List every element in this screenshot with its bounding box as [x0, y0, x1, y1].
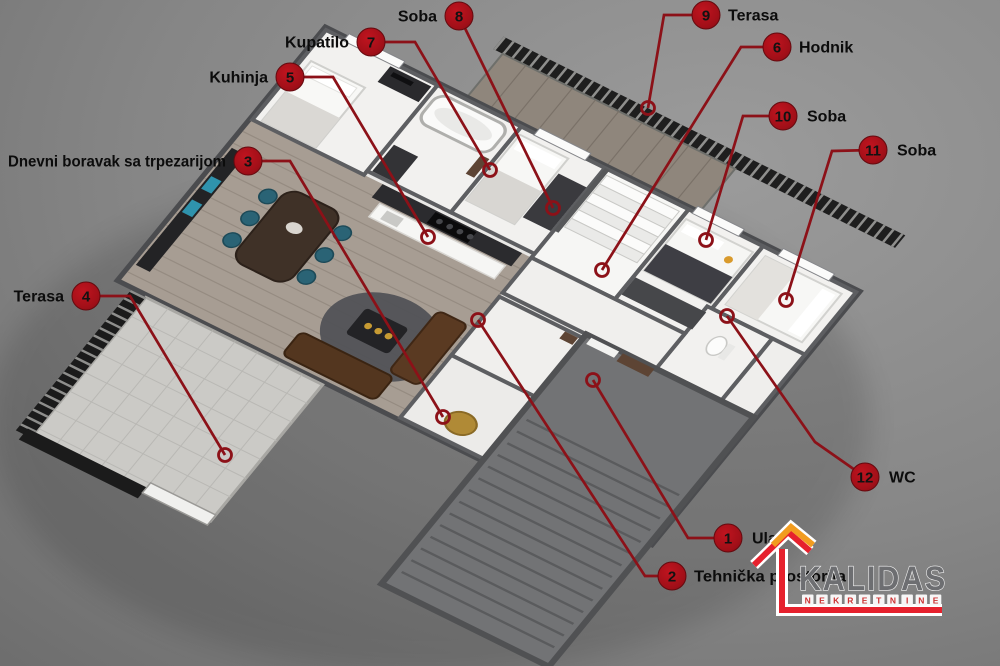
callout-number: 3 — [244, 153, 252, 170]
label-dnevni-boravak: Dnevni boravak sa trpezarijom — [8, 154, 226, 171]
subtitle-letter: E — [862, 596, 868, 606]
floor-plan-screenshot: 1Ulaz2Tehnička prostorija3Dnevni boravak… — [0, 0, 1000, 666]
label-kuhinja: Kuhinja — [209, 70, 268, 87]
subtitle-letter: N — [918, 596, 924, 606]
logo-title: KALIDAS — [799, 560, 947, 598]
scene-svg: 1Ulaz2Tehnička prostorija3Dnevni boravak… — [0, 0, 1000, 666]
subtitle-letter: K — [833, 596, 840, 606]
callout-number: 9 — [702, 7, 710, 24]
label-soba-11: Soba — [897, 143, 936, 160]
label-terasa-9: Terasa — [728, 8, 779, 25]
callout-number: 5 — [286, 69, 294, 86]
subtitle-letter: E — [819, 596, 825, 606]
label-terasa-4: Terasa — [14, 289, 65, 306]
callout-number: 2 — [668, 568, 676, 585]
subtitle-letter: T — [876, 596, 882, 606]
subtitle-letter: N — [805, 596, 811, 606]
subtitle-letter: I — [906, 596, 908, 606]
callout-number: 12 — [857, 469, 874, 486]
subtitle-letter: R — [847, 596, 853, 606]
callout-number: 10 — [775, 108, 792, 125]
label-hodnik: Hodnik — [799, 40, 853, 57]
callout-number: 8 — [455, 8, 463, 25]
callout-number: 1 — [724, 530, 732, 547]
subtitle-letter: E — [933, 596, 939, 606]
callout-number: 11 — [865, 142, 881, 159]
label-soba-10: Soba — [807, 109, 846, 126]
label-kupatilo: Kupatilo — [285, 35, 349, 52]
callout-number: 4 — [82, 288, 91, 305]
label-soba-8: Soba — [398, 9, 437, 26]
callout-number: 6 — [773, 39, 781, 56]
label-wc: WC — [889, 470, 916, 487]
callout-number: 7 — [367, 34, 375, 51]
subtitle-letter: N — [890, 596, 896, 606]
